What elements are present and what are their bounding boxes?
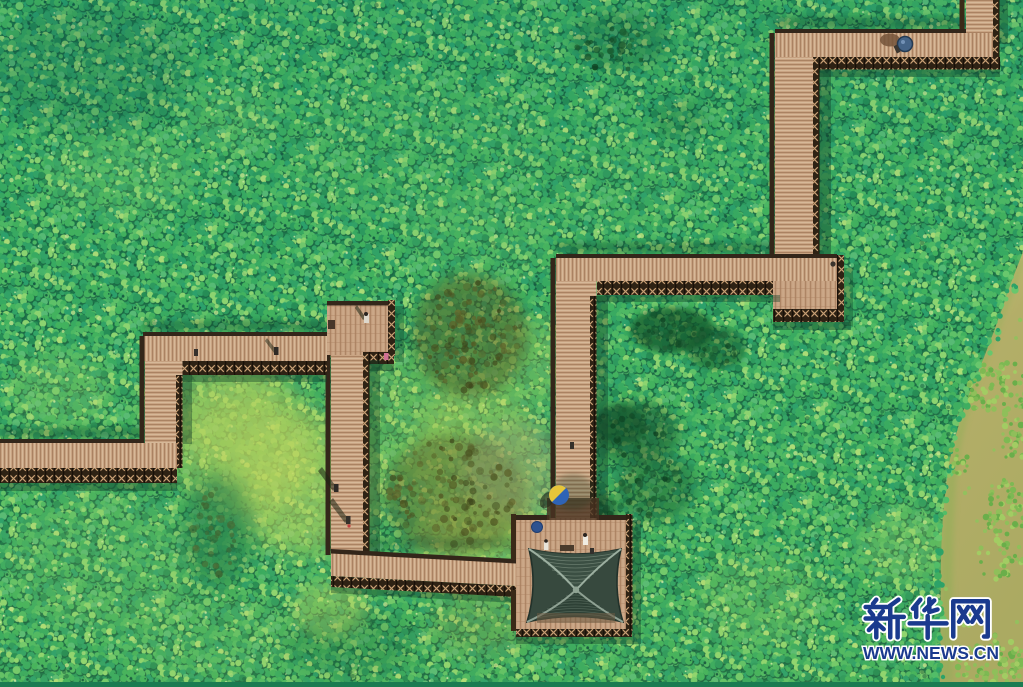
- svg-text:WWW.NEWS.CN: WWW.NEWS.CN: [863, 643, 999, 663]
